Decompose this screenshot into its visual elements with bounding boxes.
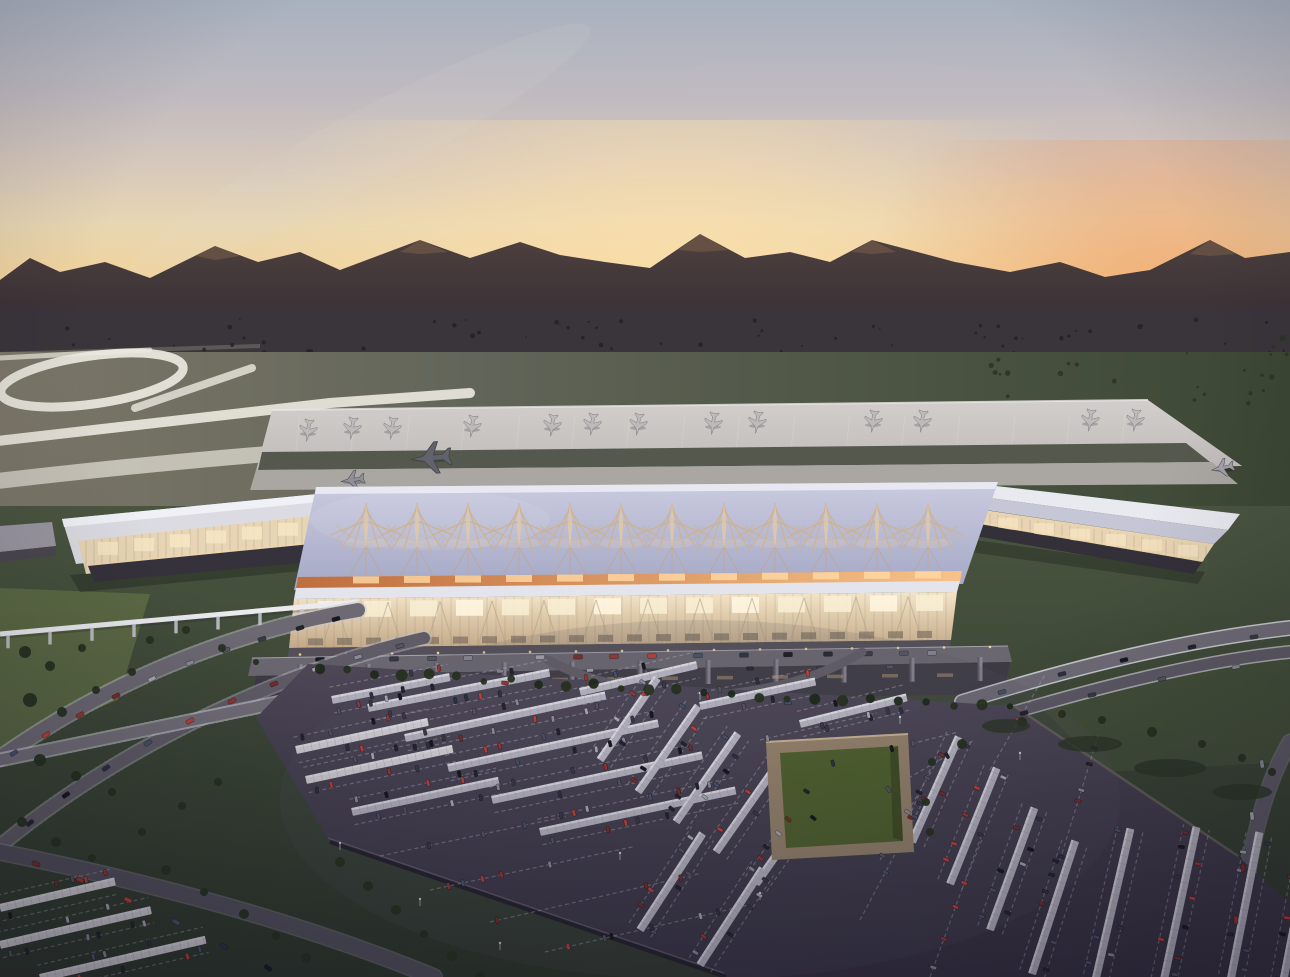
rendering-canvas bbox=[0, 0, 1290, 977]
vignette bbox=[0, 0, 1290, 977]
airport-dusk-rendering bbox=[0, 0, 1290, 977]
